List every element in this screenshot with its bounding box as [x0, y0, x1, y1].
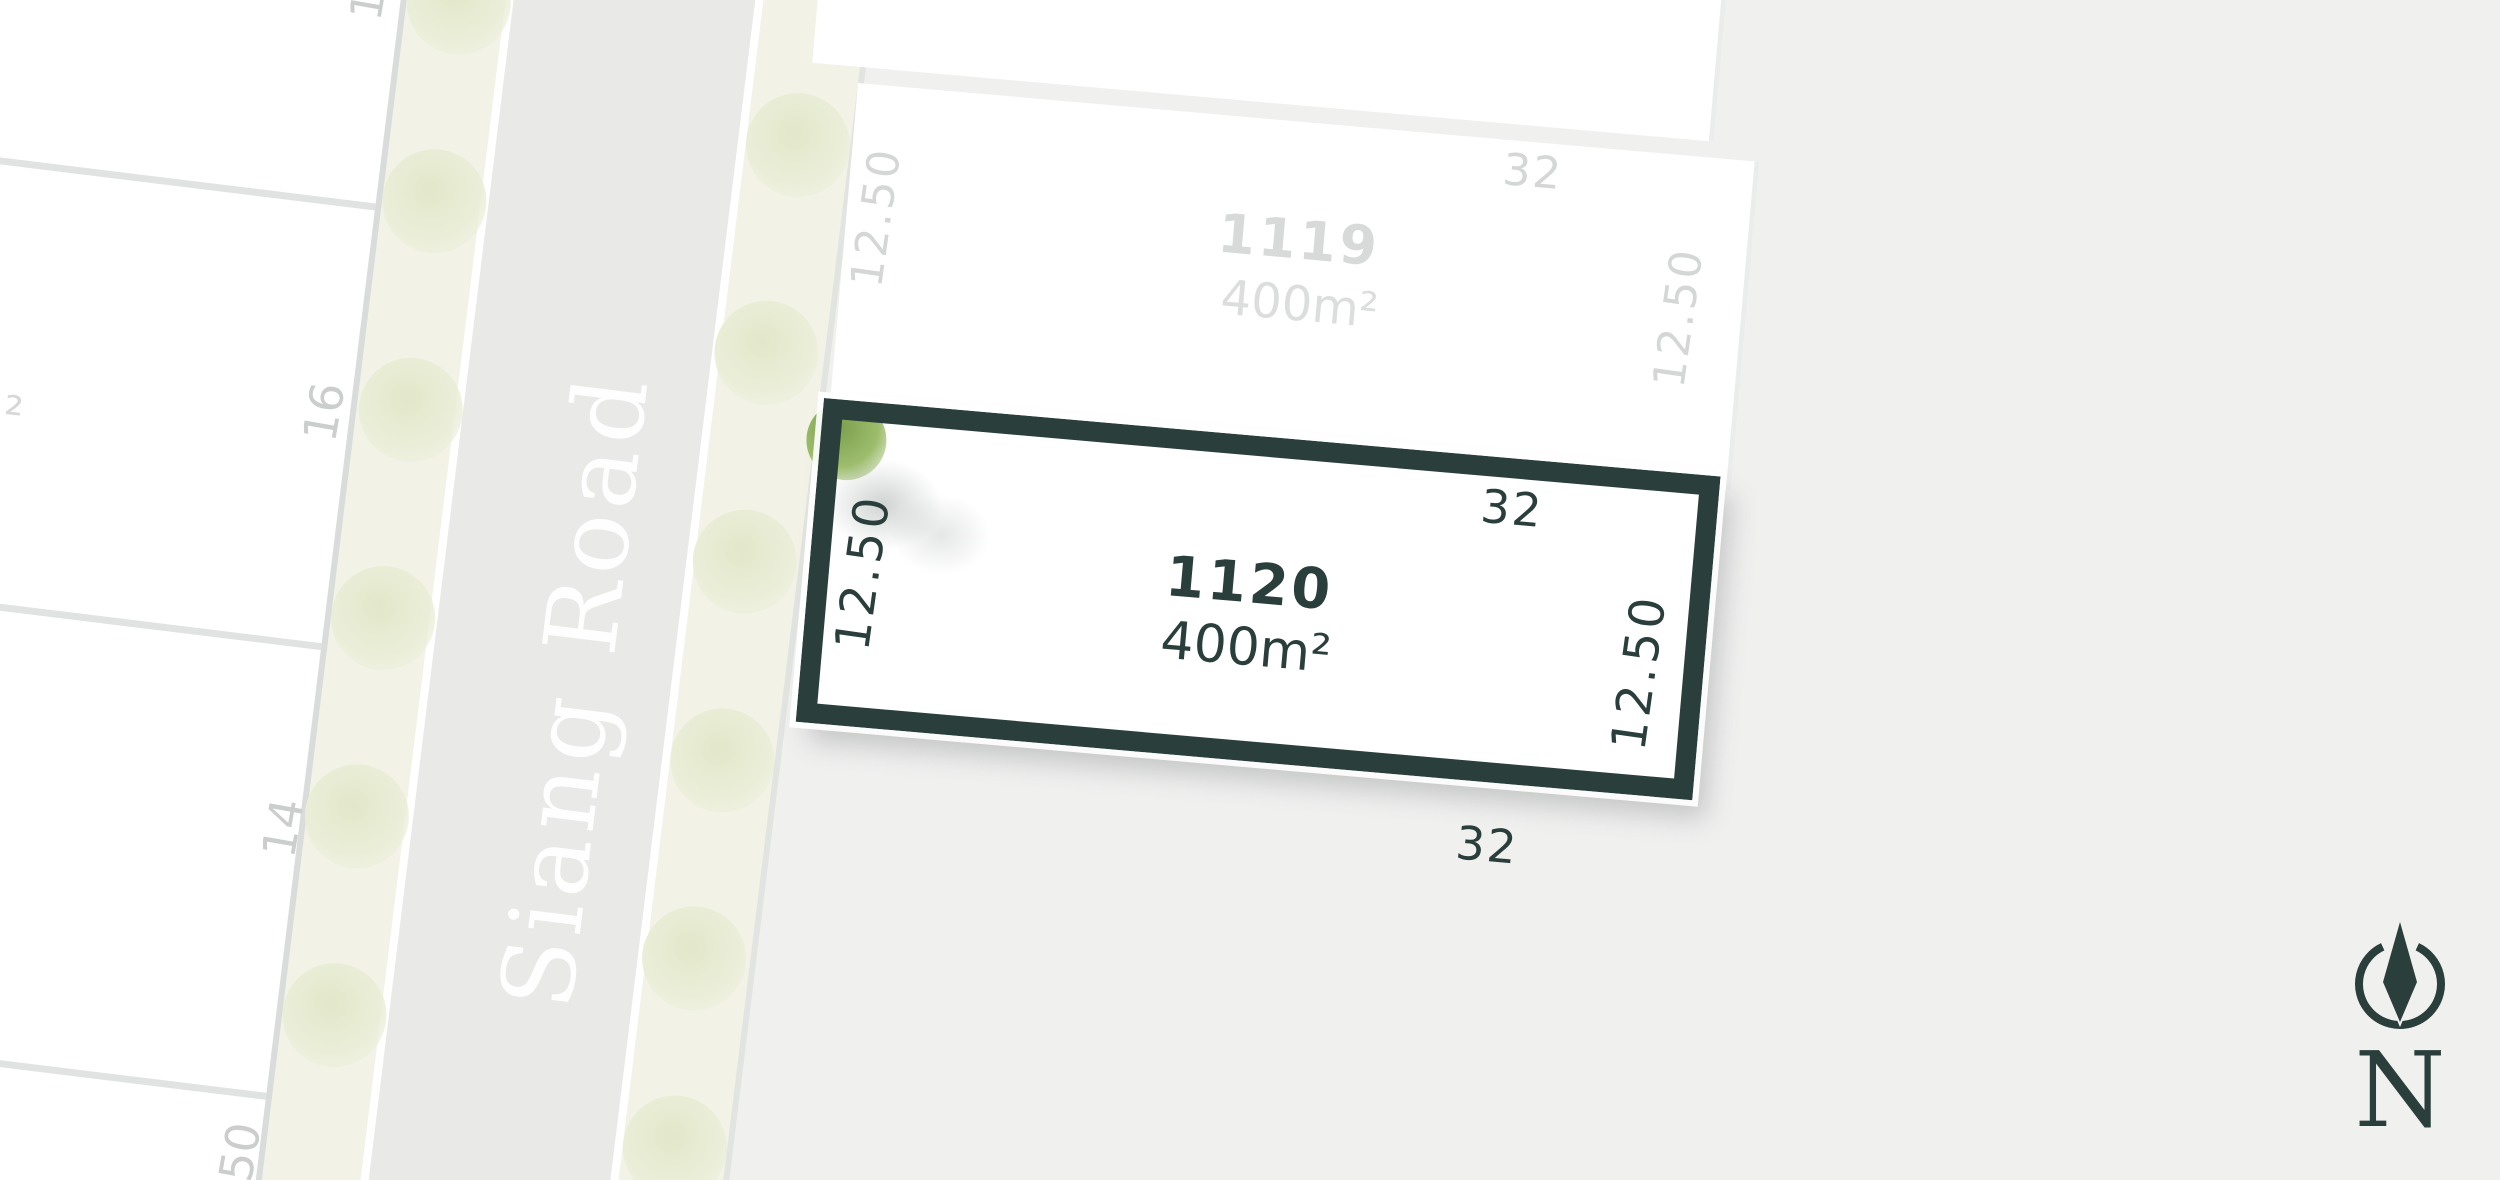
lot-dimension-bottom: 32 [1453, 815, 1520, 874]
lot-area: 400m² [1218, 270, 1380, 340]
lot-number: 1119 [1215, 202, 1382, 279]
west-dimension-partial: 50 [208, 1118, 271, 1180]
west-lot-boundary [0, 145, 419, 215]
west-lot-boundary [0, 1035, 310, 1105]
west-frontage-dimension: 14 [251, 794, 314, 861]
north-arrow-icon: N [2348, 918, 2458, 1148]
lot-dimension-left: 12.50 [841, 144, 911, 291]
lot-dimension-top: 32 [1478, 479, 1545, 538]
north-label: N [2355, 1029, 2446, 1148]
lot-dimension-top: 32 [1501, 144, 1565, 200]
north-compass: N [2348, 918, 2458, 1148]
site-plan-canvas: Siang Road 1119 400m² 32 12.50 12.50 112… [0, 0, 2500, 1180]
west-frontage-dimension: 16 [292, 378, 355, 445]
west-lot-boundary [0, 585, 365, 655]
lot-dimension-right: 12.50 [1644, 244, 1714, 391]
